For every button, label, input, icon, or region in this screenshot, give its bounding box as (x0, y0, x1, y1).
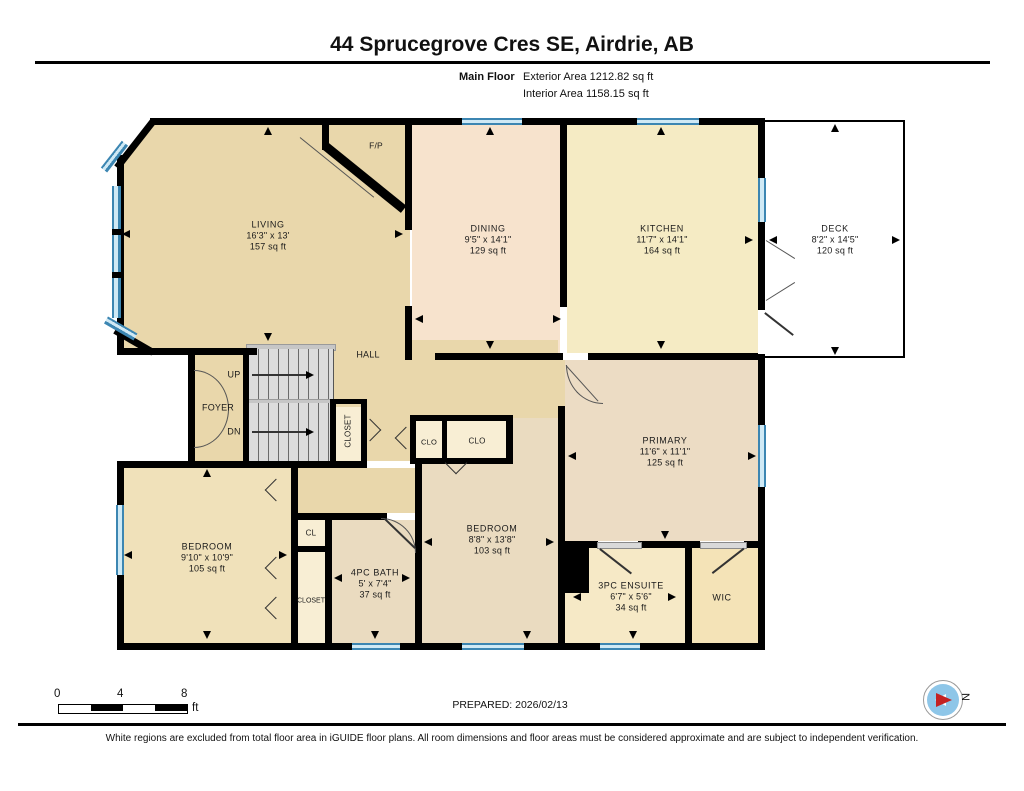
dimension-arrow (203, 631, 211, 639)
wall (117, 643, 758, 650)
room-area: 120 sq ft (812, 246, 859, 257)
room-dims: 9'10" x 10'9" (181, 553, 233, 564)
room-name: DINING (465, 224, 512, 235)
room-area: 129 sq ft (465, 246, 512, 257)
window-mullion (112, 272, 121, 278)
wall (117, 348, 257, 355)
stairs-up-arrow-icon (306, 371, 314, 379)
dimension-arrow (203, 469, 211, 477)
dimension-arrow (395, 230, 403, 238)
window (637, 118, 699, 125)
room-label-ensuite: 3PC ENSUITE 6'7" x 5'6" 34 sq ft (598, 581, 664, 614)
hall-corridor-fill (297, 468, 415, 513)
dimension-arrow (748, 452, 756, 460)
scale-bar (58, 704, 188, 714)
dimension-arrow (122, 230, 130, 238)
dimension-arrow (657, 341, 665, 349)
wall (291, 461, 298, 650)
deck-border (765, 356, 905, 358)
dimension-arrow (415, 315, 423, 323)
dimension-arrow (371, 631, 379, 639)
room-label-bedroom-left: BEDROOM 9'10" x 10'9" 105 sq ft (181, 542, 233, 575)
hall-closet-label: CLO (468, 436, 485, 447)
dimension-arrow (334, 574, 342, 582)
dimension-arrow (264, 127, 272, 135)
hall-fill (558, 360, 565, 408)
wall (243, 348, 249, 461)
dimension-arrow (546, 538, 554, 546)
wall (405, 118, 412, 230)
scale-bar-segment (91, 705, 123, 711)
ensuite-door-header (597, 542, 642, 549)
room-dims: 16'3" x 13' (246, 231, 289, 242)
room-name: BEDROOM (181, 542, 233, 553)
room-label-deck: DECK 8'2" x 14'5" 120 sq ft (812, 224, 859, 257)
wall (330, 402, 336, 461)
dimension-arrow (264, 333, 272, 341)
room-dims: 8'2" x 14'5" (812, 235, 859, 246)
wic-door-header (700, 542, 747, 549)
hall-closet-small-label: CLO (421, 437, 437, 448)
dimension-arrow (745, 236, 753, 244)
exterior-area: Exterior Area 1212.82 sq ft (523, 71, 653, 83)
window (462, 643, 524, 650)
compass-north-arrow-icon (936, 693, 952, 707)
foyer-label: FOYER (202, 403, 234, 414)
room-dims: 8'8" x 13'8" (467, 535, 518, 546)
stairs-up-label: UP (228, 370, 241, 381)
dimension-arrow (124, 551, 132, 559)
dimension-arrow (831, 347, 839, 355)
room-name: DECK (812, 224, 859, 235)
dimension-arrow (657, 127, 665, 135)
window (758, 178, 766, 222)
hall-label: HALL (356, 350, 379, 361)
dimension-arrow (831, 124, 839, 132)
wall (506, 415, 513, 464)
bay-window (112, 186, 121, 318)
stairs-down-direction-line (252, 431, 308, 433)
window-mullion (112, 229, 121, 235)
stairs-down-label: DN (227, 427, 240, 438)
dimension-arrow (668, 593, 676, 601)
room-name: 3PC ENSUITE (598, 581, 664, 592)
wall (117, 461, 367, 468)
room-label-living: LIVING 16'3" x 13' 157 sq ft (246, 220, 289, 253)
stairs-down-arrow-icon (306, 428, 314, 436)
window (600, 643, 640, 650)
room-name: PRIMARY (640, 436, 691, 447)
compass-north-label: N (959, 693, 971, 701)
dimension-arrow (769, 236, 777, 244)
dimension-arrow (573, 593, 581, 601)
header-rule (35, 61, 990, 64)
room-area: 34 sq ft (598, 603, 664, 614)
scale-unit-label: ft (192, 702, 198, 714)
room-area: 125 sq ft (640, 458, 691, 469)
room-label-bath: 4PC BATH 5' x 7'4" 37 sq ft (351, 568, 399, 601)
deck-door-opening (758, 310, 765, 354)
room-dims: 6'7" x 5'6" (598, 592, 664, 603)
room-name: WIC (712, 593, 731, 604)
scale-bar-segment (155, 705, 187, 711)
room-dims: 11'7" x 14'1" (636, 235, 687, 246)
room-name: LIVING (246, 220, 289, 231)
dimension-arrow (661, 531, 669, 539)
wall (415, 461, 422, 650)
scale-tick-4: 4 (117, 688, 123, 700)
prepared-date: PREPARED: 2026/02/13 (420, 699, 600, 711)
wall (560, 125, 567, 307)
page-title: 44 Sprucegrove Cres SE, Airdrie, AB (0, 33, 1024, 57)
wall (405, 306, 412, 360)
dimension-arrow (486, 341, 494, 349)
stairs-up-direction-line (252, 374, 308, 376)
room-dims: 11'6" x 11'1" (640, 447, 691, 458)
plumbing-chase-block (563, 546, 589, 593)
dimension-arrow (892, 236, 900, 244)
scale-tick-8: 8 (181, 688, 187, 700)
room-area: 157 sq ft (246, 242, 289, 253)
wall (744, 541, 765, 548)
room-area: 105 sq ft (181, 564, 233, 575)
room-dims: 5' x 7'4" (351, 579, 399, 590)
stair-closet-label: CLOSET (343, 414, 354, 447)
wall (410, 415, 512, 421)
dimension-arrow (568, 452, 576, 460)
deck-border (765, 120, 905, 122)
dimension-arrow (424, 538, 432, 546)
window (758, 425, 766, 487)
wall (435, 353, 563, 360)
bedroom-closet-label: CLOSET (297, 596, 325, 607)
room-name: 4PC BATH (351, 568, 399, 579)
room-label-primary: PRIMARY 11'6" x 11'1" 125 sq ft (640, 436, 691, 469)
window (462, 118, 522, 125)
disclaimer-text: White regions are excluded from total fl… (0, 733, 1024, 744)
room-area: 103 sq ft (467, 546, 518, 557)
dimension-arrow (629, 631, 637, 639)
room-label-wic: WIC (712, 593, 731, 604)
wall (325, 513, 332, 650)
room-area: 164 sq ft (636, 246, 687, 257)
dimension-arrow (402, 574, 410, 582)
room-label-dining: DINING 9'5" x 14'1" 129 sq ft (465, 224, 512, 257)
wall (588, 353, 765, 360)
dimension-arrow (486, 127, 494, 135)
wall (558, 406, 565, 548)
room-dims: 9'5" x 14'1" (465, 235, 512, 246)
dimension-arrow (279, 551, 287, 559)
wall (685, 548, 692, 650)
room-label-bedroom-middle: BEDROOM 8'8" x 13'8" 103 sq ft (467, 524, 518, 557)
room-name: KITCHEN (636, 224, 687, 235)
dimension-arrow (553, 315, 561, 323)
fireplace-label: F/P (369, 141, 383, 152)
floor-label: Main Floor (459, 71, 515, 83)
dimension-arrow (523, 631, 531, 639)
room-area: 37 sq ft (351, 590, 399, 601)
floor-plan-page: 44 Sprucegrove Cres SE, Airdrie, AB Main… (0, 0, 1024, 791)
scale-tick-0: 0 (54, 688, 60, 700)
deck-border (903, 120, 905, 358)
interior-area: Interior Area 1158.15 sq ft (523, 88, 649, 100)
wall (638, 541, 700, 548)
window (352, 643, 400, 650)
footer-rule (18, 723, 1006, 726)
window (116, 505, 124, 575)
wall (442, 415, 447, 464)
cl-closet-label: CL (306, 528, 317, 539)
room-name: BEDROOM (467, 524, 518, 535)
room-label-kitchen: KITCHEN 11'7" x 14'1" 164 sq ft (636, 224, 687, 257)
wall (325, 513, 387, 520)
